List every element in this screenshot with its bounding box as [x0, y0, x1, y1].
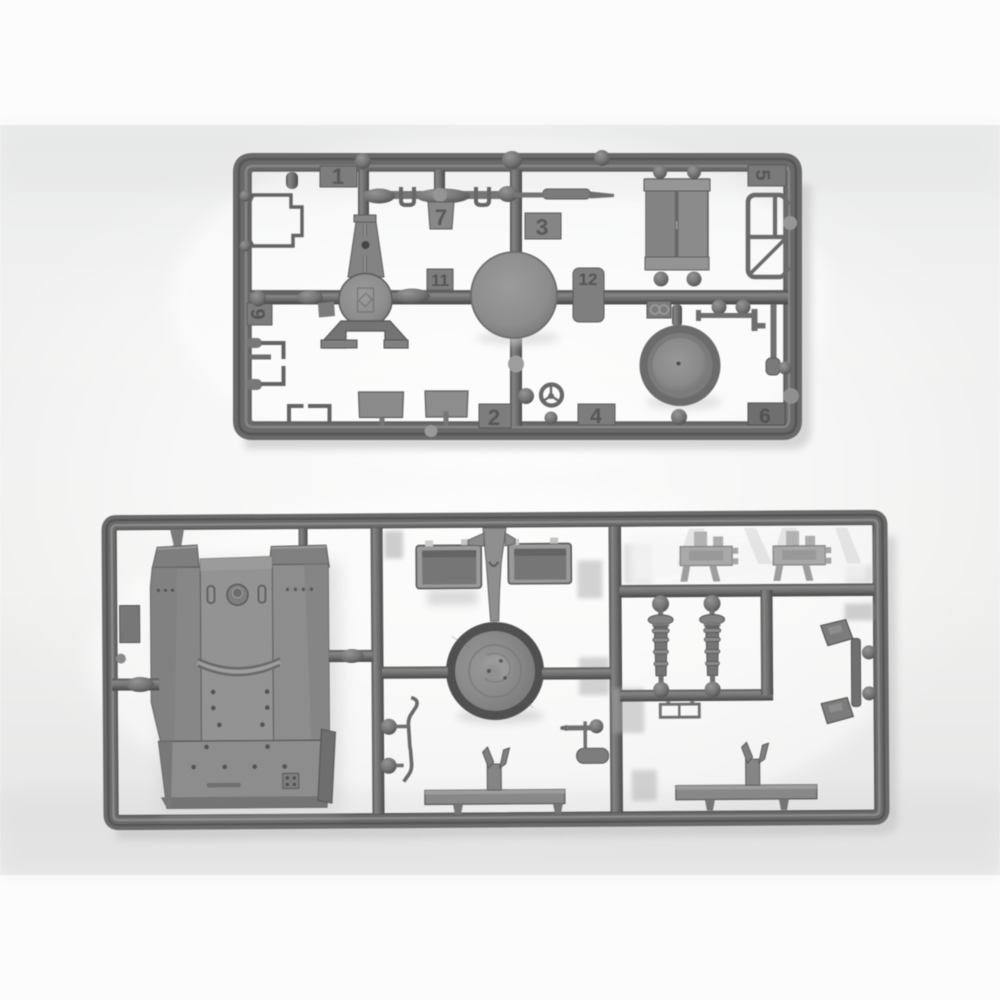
svg-text:9: 9 [246, 308, 268, 319]
svg-text:1: 1 [332, 164, 344, 189]
svg-text:2: 2 [488, 405, 500, 430]
svg-text:4: 4 [590, 405, 602, 428]
svg-text:11: 11 [431, 271, 449, 290]
svg-text:3: 3 [536, 214, 549, 240]
svg-text:12: 12 [579, 270, 598, 289]
svg-text:7: 7 [435, 205, 447, 230]
svg-text:6: 6 [759, 405, 771, 428]
svg-text:5: 5 [751, 169, 773, 180]
